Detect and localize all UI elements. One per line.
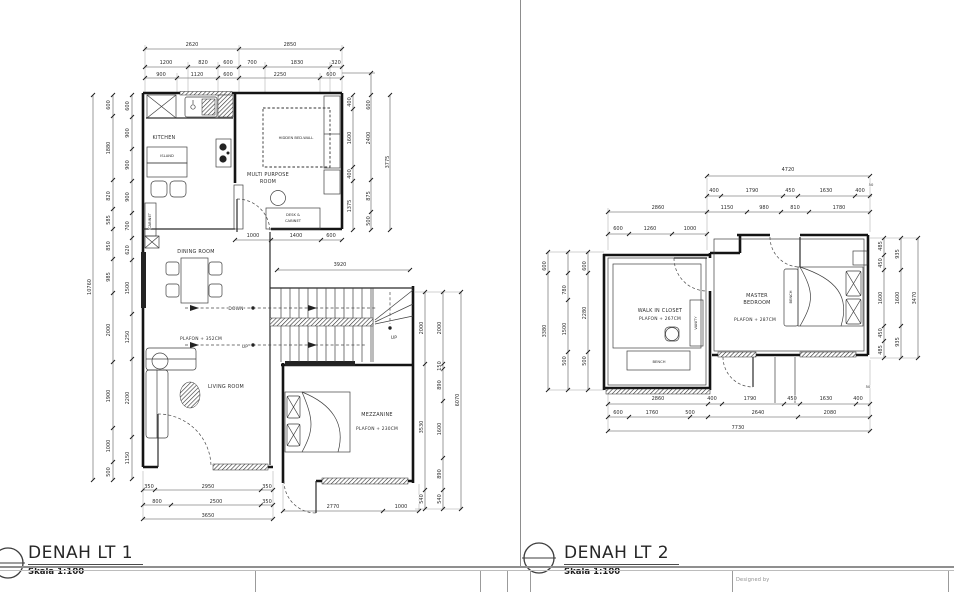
window-sill	[180, 92, 232, 96]
dim-label: CABINET	[148, 212, 152, 229]
window-sill	[718, 352, 756, 357]
dim-label: 1500	[562, 323, 568, 336]
dim-label: 350	[262, 484, 272, 490]
dim-label: 600	[613, 226, 623, 232]
titleblock-cell	[255, 571, 481, 592]
dim-label: 485	[878, 241, 884, 251]
blanket-fold	[302, 392, 340, 452]
dim-label: 1900	[106, 390, 112, 403]
dim-label: 600	[106, 100, 112, 110]
blanket-fold	[800, 267, 844, 326]
dim-label: 350	[144, 484, 154, 490]
dim-label: 1120	[191, 72, 204, 78]
dim-label: 2400	[366, 132, 372, 145]
dining-table	[181, 258, 208, 303]
sheet-border-line	[0, 566, 954, 568]
stool	[665, 327, 679, 341]
counter-hatch	[218, 95, 233, 117]
dim-label: 1600	[895, 292, 901, 305]
dim-label: BENCH	[653, 360, 666, 364]
dim-label: 3530	[419, 421, 425, 434]
dim-label: 1600	[347, 132, 353, 145]
dim-label: 1600	[878, 292, 884, 305]
dim-label: 1150	[125, 452, 131, 465]
bed	[285, 392, 350, 452]
dim-label: 985	[106, 272, 112, 282]
dim-label: 1200	[160, 60, 173, 66]
door-swing-arc	[237, 199, 270, 232]
dim-label: 2860	[652, 205, 665, 211]
dim-label: 400	[707, 396, 717, 402]
dim-label: 1790	[744, 396, 757, 402]
dim-label: 1630	[820, 396, 833, 402]
room-label: BEDROOM	[743, 300, 770, 306]
dim-label: 600	[326, 72, 336, 78]
dim-label: 500	[562, 356, 568, 366]
dim-label: 1500	[125, 282, 131, 295]
titleblock-cell	[480, 571, 508, 592]
dim-label: 800	[152, 499, 162, 505]
dim-label: 1000	[684, 226, 697, 232]
dim-label: 2000	[106, 324, 112, 337]
dim-label: 1250	[125, 331, 131, 344]
window-sill	[800, 352, 856, 357]
dim-label: 3380	[542, 325, 548, 338]
dim-label: 900	[125, 128, 131, 138]
dim-label: 700	[125, 221, 131, 231]
dim-label: 600	[366, 100, 372, 110]
dim-label: 1375	[347, 200, 353, 213]
dim-label: 1000	[395, 504, 408, 510]
dim-label: 1000	[106, 440, 112, 453]
dim-label: 3920	[334, 262, 347, 268]
annotation-label: PLAFON + 287CM	[734, 317, 776, 323]
room-label: MEZZANINE	[361, 412, 392, 418]
dim-label: 810	[790, 205, 800, 211]
floorplan-lt2: 4720400179045016304005028601150980810178…	[520, 0, 954, 570]
dim-label: 890	[437, 380, 443, 390]
panel-divider	[520, 0, 521, 567]
drawing-sheet: 2620285012008206007001830320900112060022…	[0, 0, 954, 592]
dim-label: 1830	[291, 60, 304, 66]
dim-label: 150	[437, 361, 443, 371]
dim-label: 600	[542, 261, 548, 271]
dim-label: 6070	[455, 394, 461, 407]
dim-label: 400	[347, 97, 353, 107]
faucet-icon	[191, 105, 195, 109]
dim-label: 2200	[125, 392, 131, 405]
dim-label: 4720	[782, 167, 795, 173]
floorplan-lt1: 2620285012008206007001830320900112060022…	[0, 0, 520, 570]
dim-label: 2280	[582, 307, 588, 320]
plan-title-text: DENAH LT 2	[564, 543, 679, 565]
door-swing-arc	[158, 414, 211, 467]
dim-label: 2000	[419, 322, 425, 335]
dim-label: 600	[223, 72, 233, 78]
dim-label: 2080	[824, 410, 837, 416]
dim-label: 2640	[752, 410, 765, 416]
lt1-living	[146, 348, 211, 467]
dim-label: 2620	[186, 42, 199, 48]
nightstand	[853, 251, 867, 265]
dim-label: 3775	[385, 156, 391, 169]
dim-label: 450	[787, 396, 797, 402]
dim-label: CABINET	[285, 219, 302, 223]
titleblock-cell	[948, 571, 954, 592]
dim-label: 600	[125, 101, 131, 111]
dim-label: 820	[106, 191, 112, 201]
dim-label: 585	[106, 215, 112, 225]
lt1-dining	[166, 258, 222, 303]
room-label: LIVING ROOM	[208, 384, 244, 390]
dim-label: 10760	[87, 279, 93, 295]
titleblock-cell	[507, 571, 531, 592]
dim-label: 1150	[721, 205, 734, 211]
annotation-label: PLAFON + 352CM	[180, 336, 222, 342]
lt1-multipurpose-room	[237, 96, 340, 232]
titleblock-cells: Designed by	[0, 571, 954, 592]
room-label: MASTER	[746, 293, 768, 299]
dim-label: 900	[125, 192, 131, 202]
wall-poche	[141, 252, 146, 308]
dim-label: 2000	[437, 322, 443, 335]
tall-cabinet	[234, 185, 243, 229]
wardrobe	[613, 264, 701, 348]
room-label: ROOM	[260, 179, 276, 185]
chair-icon	[209, 262, 222, 275]
dim-label: 780	[562, 285, 568, 295]
dim-label: 7730	[732, 425, 745, 431]
annotation-label: UP	[391, 335, 397, 341]
dim-label: 400	[853, 396, 863, 402]
dim-label: 600	[613, 410, 623, 416]
door-swing-arc	[674, 258, 707, 291]
dim-label: DESK &	[286, 213, 300, 217]
dim-label: 1760	[646, 410, 659, 416]
dim-label: 3650	[202, 513, 215, 519]
window-sill	[213, 464, 268, 470]
dim-label: 700	[247, 60, 257, 66]
dim-label: 400	[709, 188, 719, 194]
dim-label: ISLAND	[160, 154, 174, 158]
bed	[798, 267, 863, 326]
dim-label: 2860	[652, 396, 665, 402]
lt2-walk-in-closet	[613, 258, 707, 370]
designed-by-label: Designed by	[736, 577, 769, 583]
side-table	[152, 353, 168, 369]
dim-label: 450	[878, 328, 884, 338]
dim-label: 500	[685, 410, 695, 416]
titleblock-strip: Designed by	[0, 566, 954, 592]
chair-icon	[166, 262, 179, 275]
lt1-walls	[141, 92, 413, 485]
dim-label: 820	[198, 60, 208, 66]
door-swing-arc	[723, 237, 800, 387]
dim-label: 1790	[746, 188, 759, 194]
annotation-label: PLAFON + 267CM	[639, 316, 681, 322]
wardrobe	[324, 96, 340, 168]
lt2-text-layer: 4720400179045016304005028601150980810178…	[542, 167, 918, 431]
dim-label: 935	[895, 249, 901, 259]
titleblock-cell	[530, 571, 733, 592]
stair-landing	[270, 318, 373, 326]
dim-label: 1000	[247, 233, 260, 239]
dim-label: 2500	[210, 499, 223, 505]
lt1-stairs	[185, 288, 413, 362]
dim-label: 50	[869, 183, 874, 187]
dim-label: 1630	[820, 188, 833, 194]
dim-label: 1600	[437, 423, 443, 436]
dim-label: 350	[262, 499, 272, 505]
dim-label: 1780	[833, 205, 846, 211]
dim-label: 450	[878, 258, 884, 268]
dim-label: 980	[759, 205, 769, 211]
dim-label: 500	[366, 216, 372, 226]
room-label: KITCHEN	[153, 135, 176, 141]
window-sill	[322, 478, 408, 484]
plan-title-text: DENAH LT 1	[28, 543, 143, 565]
dim-label: 3470	[912, 292, 918, 305]
dim-label: 400	[347, 169, 353, 179]
dim-label: 2250	[274, 72, 287, 78]
lt1-mezzanine	[284, 392, 350, 513]
annotation-label: DOWN	[228, 306, 243, 312]
dim-label: 2770	[327, 504, 340, 510]
dim-label: 890	[437, 469, 443, 479]
dim-label: 1880	[106, 142, 112, 155]
dim-label: 600	[326, 233, 336, 239]
dim-label: 600	[582, 261, 588, 271]
coffee-table	[180, 382, 200, 408]
dim-label: 875	[366, 191, 372, 201]
stool	[151, 181, 167, 197]
door-swing-arc	[284, 481, 316, 513]
dim-label: 450	[785, 188, 795, 194]
chair-icon	[209, 284, 222, 297]
dim-label: 600	[223, 60, 233, 66]
window-sill	[606, 389, 710, 394]
door-leaf	[753, 237, 800, 387]
dim-label: 935	[895, 337, 901, 347]
dim-label: HIDDEN BED-WALL	[279, 136, 315, 140]
chair-icon	[166, 284, 179, 297]
room-label: WALK IN CLOSET	[638, 308, 683, 314]
dim-label: 900	[156, 72, 166, 78]
chair-icon	[271, 191, 286, 206]
room-label: DINING ROOM	[177, 249, 214, 255]
dim-label: 1260	[644, 226, 657, 232]
dim-label: 2950	[202, 484, 215, 490]
dim-label: 620	[125, 245, 131, 255]
dim-label: 400	[855, 188, 865, 194]
dim-label: 540	[419, 494, 425, 504]
dim-label: 500	[106, 467, 112, 477]
dim-label: 1400	[290, 233, 303, 239]
stool	[170, 181, 186, 197]
room-label: MULTI PURPOSE	[247, 172, 289, 178]
dim-label: 320	[331, 60, 341, 66]
annotation-label: PLAFON + 230CM	[356, 426, 398, 432]
dim-label: 540	[437, 494, 443, 504]
dim-label: 485	[878, 345, 884, 355]
annotation-label: UP	[242, 344, 248, 350]
dim-label: 50	[866, 385, 871, 389]
dim-label: 2850	[284, 42, 297, 48]
wall-poche	[285, 361, 355, 366]
dim-label: 850	[106, 241, 112, 251]
dim-label: VANITY	[694, 316, 698, 330]
dim-label: BENCH	[789, 290, 793, 303]
dim-label: 900	[125, 160, 131, 170]
dim-label: 500	[582, 356, 588, 366]
